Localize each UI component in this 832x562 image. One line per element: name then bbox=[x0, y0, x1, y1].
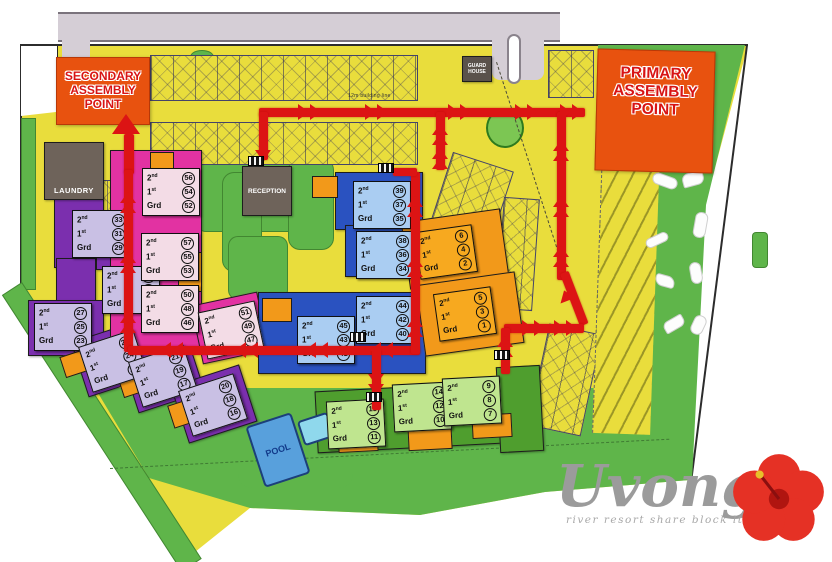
route-arrow-icon bbox=[172, 342, 183, 358]
evac-route-segment bbox=[393, 168, 417, 176]
route-arrow-icon bbox=[407, 326, 423, 337]
floor-label: Grd bbox=[449, 411, 464, 420]
route-arrow-icon bbox=[120, 262, 136, 273]
floor-label: 1st bbox=[146, 305, 155, 314]
floor-label: 1st bbox=[361, 316, 370, 325]
unit-floor-row: 1st36 bbox=[361, 249, 409, 262]
unit-label: 2nd501st48Grd46 bbox=[141, 285, 199, 333]
floor-label: Grd bbox=[333, 434, 348, 443]
route-arrow-icon bbox=[553, 206, 569, 217]
gate-icon bbox=[378, 163, 394, 173]
unit-number: 9 bbox=[482, 379, 496, 393]
traffic-island bbox=[507, 34, 521, 84]
floor-label: 1st bbox=[361, 251, 370, 260]
unit-floor-row: 2nd50 bbox=[146, 289, 194, 302]
route-arrow-icon bbox=[120, 322, 136, 333]
unit-floor-row: Grd40 bbox=[361, 328, 409, 341]
floor-label: 2nd bbox=[135, 363, 148, 374]
guard-house-building: GUARD HOUSE bbox=[462, 56, 492, 82]
resort-logo-tagline: river resort share block ltd bbox=[566, 514, 752, 526]
floor-label: 2nd bbox=[146, 239, 157, 248]
unit-number: 4 bbox=[456, 242, 471, 257]
floor-label: 2nd bbox=[146, 291, 157, 300]
unit-floor-row: 1st54 bbox=[147, 186, 195, 199]
unit-number: 44 bbox=[396, 300, 409, 313]
unit-number: 54 bbox=[182, 186, 195, 199]
floor-label: 1st bbox=[441, 312, 451, 322]
floor-label: 1st bbox=[189, 406, 200, 417]
unit-floor-row: 1st48 bbox=[146, 303, 194, 316]
laundry-label: LAUNDRY bbox=[54, 186, 94, 195]
route-arrow-icon bbox=[365, 104, 376, 120]
floor-label: 2nd bbox=[361, 302, 372, 311]
floor-label: 1st bbox=[77, 230, 86, 239]
route-arrow-icon bbox=[235, 342, 246, 358]
unit-floor-row: 2nd33 bbox=[77, 214, 125, 227]
floor-label: Grd bbox=[193, 418, 209, 430]
route-arrow-icon bbox=[448, 104, 459, 120]
route-arrow-icon bbox=[310, 104, 321, 120]
unit-number: 13 bbox=[367, 416, 381, 430]
assembly-text-line: POINT bbox=[631, 100, 679, 119]
floor-label: 2nd bbox=[420, 236, 432, 246]
unit-floor-row: 1st12 bbox=[398, 399, 447, 414]
unit-floor-row: 2nd39 bbox=[358, 185, 406, 198]
unit-floor-row: Grd34 bbox=[361, 263, 409, 276]
floor-label: 1st bbox=[139, 377, 150, 388]
unit-number: 45 bbox=[337, 320, 350, 333]
unit-number: 50 bbox=[181, 289, 194, 302]
route-arrow-icon bbox=[305, 342, 316, 358]
floor-label: 1st bbox=[89, 362, 100, 373]
floor-label: 1st bbox=[422, 250, 432, 260]
unit-number: 53 bbox=[181, 265, 194, 278]
resort-evacuation-map: LAUNDRY RECEPTION GUARD HOUSE POOL SECON… bbox=[0, 0, 832, 562]
unit-floor-row: Grd11 bbox=[332, 430, 381, 445]
unit-number: 7 bbox=[483, 407, 497, 421]
building-line-note: 12m building line bbox=[348, 93, 391, 99]
unit-floor-row: Grd35 bbox=[358, 213, 406, 226]
unit-label: 2nd571st55Grd53 bbox=[141, 233, 199, 281]
unit-label: 2nd51st3Grd1 bbox=[433, 286, 497, 342]
route-arrow-icon bbox=[554, 320, 565, 336]
unit-number: 48 bbox=[181, 303, 194, 316]
route-arrow-icon bbox=[432, 158, 448, 169]
route-arrow-icon bbox=[460, 104, 471, 120]
route-arrow-icon bbox=[553, 256, 569, 267]
assembly-text-line: POINT bbox=[85, 98, 122, 112]
unit-floor-row: 2nd38 bbox=[361, 235, 409, 248]
unit-floor-row: Grd52 bbox=[147, 200, 195, 213]
unit-floor-row: 2nd45 bbox=[302, 320, 350, 333]
route-arrow-icon bbox=[432, 134, 448, 145]
floor-label: 1st bbox=[358, 201, 367, 210]
unit-floor-row: Grd7 bbox=[448, 407, 497, 422]
unit-floor-row: 1st13 bbox=[332, 416, 381, 431]
floor-label: 2nd bbox=[204, 315, 216, 326]
gate-icon bbox=[366, 392, 382, 402]
unit-label: 2nd561st54Grd52 bbox=[142, 168, 200, 216]
grass-area-courtyard bbox=[228, 236, 288, 300]
unit-floor-row: 2nd27 bbox=[39, 307, 87, 320]
route-arrow-icon bbox=[407, 206, 423, 217]
floor-label: 2nd bbox=[361, 237, 372, 246]
route-arrow-icon bbox=[377, 104, 388, 120]
unit-label: 2nd391st37Grd35 bbox=[353, 181, 411, 229]
unit-number: 56 bbox=[182, 172, 195, 185]
floor-label: 1st bbox=[332, 420, 341, 429]
grass-patch bbox=[752, 232, 768, 268]
route-arrow-icon bbox=[120, 202, 136, 213]
floor-label: Grd bbox=[146, 319, 160, 327]
unit-number: 11 bbox=[367, 430, 381, 444]
floor-label: 1st bbox=[146, 253, 155, 262]
unit-floor-row: 1st31 bbox=[77, 228, 125, 241]
unit-floor-row: 2nd44 bbox=[361, 300, 409, 313]
unit-number: 52 bbox=[182, 200, 195, 213]
floor-label: Grd bbox=[143, 389, 159, 401]
unit-number: 16 bbox=[226, 405, 242, 421]
unit-number: 5 bbox=[473, 290, 488, 305]
garage-block bbox=[262, 298, 292, 322]
garage-block bbox=[312, 176, 338, 198]
unit-label: 2nd271st25Grd23 bbox=[34, 303, 92, 351]
route-arrow-icon bbox=[112, 114, 140, 134]
floor-label: Grd bbox=[424, 263, 439, 273]
reception-building: RECEPTION bbox=[242, 166, 292, 216]
unit-number: 25 bbox=[74, 321, 87, 334]
unit-number: 1 bbox=[477, 318, 492, 333]
unit-floor-row: 1st8 bbox=[448, 393, 497, 408]
grass-strip-left bbox=[21, 118, 36, 290]
route-arrow-icon bbox=[247, 342, 258, 358]
route-arrow-icon bbox=[566, 320, 577, 336]
floor-label: Grd bbox=[358, 215, 372, 223]
route-arrow-icon bbox=[515, 104, 526, 120]
route-arrow-icon bbox=[560, 104, 571, 120]
route-arrow-icon bbox=[407, 266, 423, 277]
floor-label: 2nd bbox=[302, 322, 313, 331]
unit-floor-row: Grd46 bbox=[146, 317, 194, 330]
unit-label: 2nd91st8Grd7 bbox=[442, 376, 502, 427]
unit-number: 8 bbox=[483, 393, 497, 407]
floor-label: Grd bbox=[39, 337, 53, 345]
assembly-text-line: PRIMARY bbox=[620, 64, 691, 84]
floor-label: 2nd bbox=[397, 389, 408, 398]
floor-label: Grd bbox=[107, 300, 121, 308]
floor-label: Grd bbox=[443, 325, 458, 335]
gate-icon bbox=[494, 350, 510, 360]
unit-floor-row: Grd29 bbox=[77, 242, 125, 255]
unit-floor-row: 2nd57 bbox=[146, 237, 194, 250]
floor-label: Grd bbox=[77, 244, 91, 252]
map-boundary-notch bbox=[21, 46, 58, 116]
floor-label: 1st bbox=[448, 397, 457, 406]
unit-floor-row: 1st25 bbox=[39, 321, 87, 334]
unit-number: 39 bbox=[393, 185, 406, 198]
floor-label: 2nd bbox=[39, 309, 50, 318]
route-arrow-icon bbox=[382, 342, 393, 358]
unit-label: 2nd61st4Grd2 bbox=[414, 224, 478, 280]
evac-route-segment bbox=[124, 134, 134, 174]
route-arrow-icon bbox=[298, 104, 309, 120]
unit-number: 27 bbox=[74, 307, 87, 320]
unit-number: 35 bbox=[393, 213, 406, 226]
unit-number: 37 bbox=[393, 199, 406, 212]
unit-floor-row: 1st37 bbox=[358, 199, 406, 212]
route-arrow-icon bbox=[160, 342, 171, 358]
route-arrow-icon bbox=[534, 320, 545, 336]
unit-floor-row: 1st42 bbox=[361, 314, 409, 327]
unit-number: 6 bbox=[454, 228, 469, 243]
unit-label: 2nd331st31Grd29 bbox=[72, 210, 130, 258]
floor-label: 1st bbox=[147, 188, 156, 197]
route-arrow-icon bbox=[370, 342, 381, 358]
gate-icon bbox=[248, 156, 264, 166]
unit-label: 2nd381st36Grd34 bbox=[356, 231, 414, 279]
assembly-text-line: ASSEMBLY bbox=[70, 84, 136, 98]
building-block-green bbox=[496, 365, 544, 453]
floor-label: 2nd bbox=[85, 348, 98, 359]
unit-number: 38 bbox=[396, 235, 409, 248]
floor-label: 1st bbox=[207, 329, 218, 339]
route-arrow-icon bbox=[317, 342, 328, 358]
floor-label: 2nd bbox=[358, 187, 369, 196]
unit-floor-row: 1st55 bbox=[146, 251, 194, 264]
route-arrow-icon bbox=[527, 104, 538, 120]
assembly-text-line: ASSEMBLY bbox=[613, 82, 698, 102]
route-arrow-icon bbox=[522, 320, 533, 336]
floor-label: 1st bbox=[107, 286, 116, 295]
floor-label: 2nd bbox=[185, 392, 198, 403]
parking-area bbox=[548, 50, 594, 98]
unit-floor-row: Grd53 bbox=[146, 265, 194, 278]
unit-floor-row: 2nd9 bbox=[447, 379, 496, 394]
unit-number: 55 bbox=[181, 251, 194, 264]
unit-number: 2 bbox=[458, 256, 473, 271]
unit-floor-row: 2nd56 bbox=[147, 172, 195, 185]
main-road bbox=[58, 12, 560, 42]
unit-floor-row: Grd10 bbox=[398, 413, 447, 428]
route-arrow-icon bbox=[553, 150, 569, 161]
floor-label: Grd bbox=[147, 202, 161, 210]
floor-label: Grd bbox=[399, 417, 414, 426]
reception-label: RECEPTION bbox=[248, 188, 286, 195]
laundry-building: LAUNDRY bbox=[44, 142, 104, 200]
floor-label: 1st bbox=[398, 403, 407, 412]
floor-label: Grd bbox=[93, 374, 109, 386]
route-arrow-icon bbox=[572, 104, 583, 120]
unit-number: 46 bbox=[181, 317, 194, 330]
floor-label: Grd bbox=[361, 265, 375, 273]
guard-house-label: GUARD HOUSE bbox=[463, 63, 491, 75]
unit-number: 3 bbox=[475, 304, 490, 319]
floor-label: 2nd bbox=[331, 406, 342, 415]
floor-label: 2nd bbox=[439, 298, 451, 308]
assembly-text-line: SECONDARY bbox=[65, 70, 141, 84]
unit-number: 57 bbox=[181, 237, 194, 250]
floor-label: 1st bbox=[39, 323, 48, 332]
floor-label: Grd bbox=[146, 267, 160, 275]
floor-label: 2nd bbox=[107, 272, 118, 281]
hibiscus-flower-icon bbox=[728, 446, 830, 552]
floor-label: 2nd bbox=[447, 383, 458, 392]
primary-assembly-point: PRIMARY ASSEMBLY POINT bbox=[594, 48, 715, 173]
floor-label: 2nd bbox=[77, 216, 88, 225]
grass-area-courtyard bbox=[288, 158, 334, 250]
unit-floor-row: 2nd14 bbox=[397, 385, 446, 400]
floor-label: 2nd bbox=[147, 174, 158, 183]
unit-number: 43 bbox=[337, 334, 350, 347]
gate-icon bbox=[350, 332, 366, 342]
